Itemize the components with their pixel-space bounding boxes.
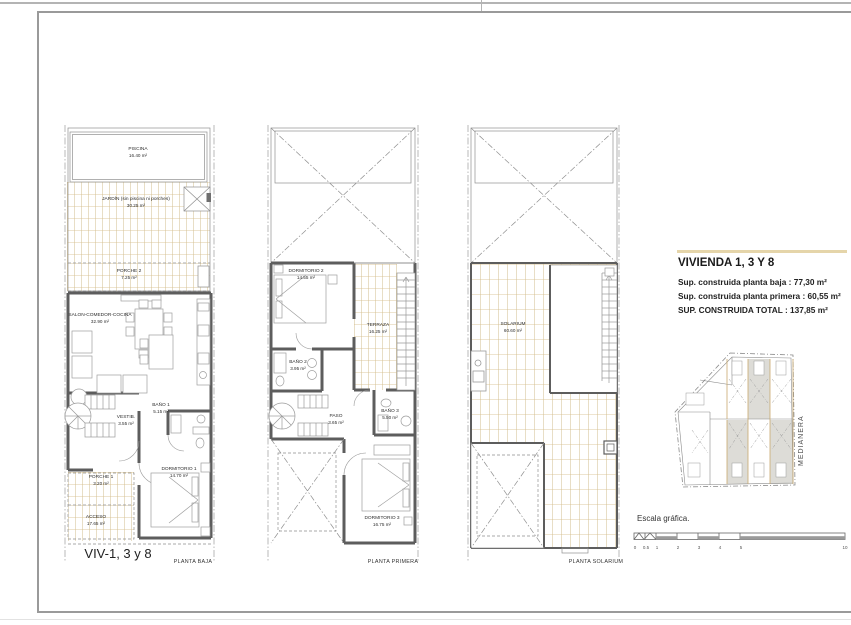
room-label-dorm1: DORMITORIO 1 14.70 m² [161, 467, 196, 480]
floorplan-planta-primera: DORMITORIO 2 14.55 m² TERRAZA 16.25 m² B… [266, 123, 421, 563]
room-name: ACCESO [86, 515, 106, 520]
room-name: DORMITORIO 3 [364, 516, 399, 521]
void-over-garden [471, 128, 617, 263]
floorplan-planta-baja: PISCINA 16.40 m² JARDÍN (sin piscina ni … [63, 123, 218, 563]
room-area: 60.60 m² [500, 328, 525, 334]
room-label-dorm3: DORMITORIO 3 16.75 m² [364, 516, 399, 529]
room-area: 16.75 m² [364, 522, 399, 528]
room-name: BAÑO 2 [289, 360, 307, 365]
drawing-sheet: PISCINA 16.40 m² JARDÍN (sin piscina ni … [0, 0, 851, 625]
room-area: 14.70 m² [161, 473, 196, 479]
stair-shaft [550, 265, 617, 393]
bath1-fixtures [171, 415, 209, 448]
scale-caption: Escala gráfica. [637, 514, 689, 523]
sheet-top-rule [0, 2, 851, 4]
unit-label: VIV-1, 3 y 8 [84, 546, 151, 561]
scale-tick-10: 10 [842, 545, 847, 550]
scale-bar [633, 532, 849, 546]
room-name: DORMITORIO 2 [288, 269, 323, 274]
room-area: 14.55 m² [288, 275, 323, 281]
room-name: VESTIB. [117, 415, 135, 420]
room-name: PORCHE 2 [117, 269, 142, 274]
room-name: DORMITORIO 1 [161, 467, 196, 472]
terraza-stairs [397, 273, 415, 390]
room-name: PASO [330, 414, 343, 419]
legend-line-total: SUP. CONSTRUIDA TOTAL : 137,85 m² [678, 305, 828, 315]
rooftop-unit [471, 351, 486, 391]
room-label-porche2: PORCHE 2 7.25 m² [117, 269, 142, 282]
room-label-salon: SALON-COMEDOR-COCINA 32.90 m² [68, 313, 131, 326]
void-over-garden [271, 128, 415, 263]
room-label-bano2: BAÑO 2 3.95 m² [289, 360, 307, 373]
garden-cabinet [198, 266, 209, 287]
medianera-label: MEDIANERA [798, 396, 810, 466]
room-area: 30.25 m² [102, 203, 170, 209]
room-name: BAÑO 1 [152, 403, 170, 408]
planter-box [184, 187, 211, 211]
legend-accent-rule [677, 250, 847, 253]
legend-line-planta-baja: Sup. construida planta baja : 77,30 m² [678, 277, 827, 287]
room-label-bano3: BAÑO 3 5.50 m² [381, 409, 399, 422]
room-label-bano1: BAÑO 1 5.15 m² [152, 403, 170, 416]
scale-tick-3: 3 [698, 545, 701, 550]
room-area: 16.25 m² [367, 329, 389, 335]
void-over-porche [471, 443, 544, 548]
planta-primera-drawing [266, 123, 421, 563]
room-area: 17.65 m² [86, 521, 106, 527]
legend-line-planta-primera: Sup. construida planta primera : 60,55 m… [678, 291, 841, 301]
plan-title-baja: PLANTA BAJA [174, 559, 213, 565]
room-area: 16.40 m² [128, 153, 147, 159]
floorplan-planta-solarium: SOLARIUM 60.60 m² PLANTA SOLARIUM [466, 123, 622, 563]
room-label-terraza: TERRAZA 16.25 m² [367, 323, 389, 336]
room-name: PISCINA [128, 147, 147, 152]
chimney [604, 441, 617, 454]
room-area: 3.95 m² [289, 366, 307, 372]
sheet-bottom-rule [0, 619, 851, 620]
dorm3-bed [362, 445, 412, 525]
room-label-dorm2: DORMITORIO 2 14.55 m² [288, 269, 323, 282]
room-area: 3.65 m² [328, 420, 344, 426]
room-area: 32.90 m² [68, 319, 131, 325]
room-label-porche1: PORCHE 1 3.20 m² [89, 475, 114, 488]
site-key-plan [670, 345, 805, 495]
room-label-piscina: PISCINA 16.40 m² [128, 147, 147, 160]
room-name: BAÑO 3 [381, 409, 399, 414]
room-area: 5.15 m² [152, 409, 170, 415]
room-name: SALON-COMEDOR-COCINA [68, 313, 131, 318]
room-label-paso: PASO 3.65 m² [328, 414, 344, 427]
plan-title-solarium: PLANTA SOLARIUM [569, 559, 623, 565]
scale-tick-2: 2 [677, 545, 680, 550]
site-key-drawing [670, 345, 805, 495]
scale-tick-1: 1 [656, 545, 659, 550]
living-furniture [71, 295, 173, 405]
room-name: PORCHE 1 [89, 475, 114, 480]
room-name: JARDÍN (sin piscina ni porches) [102, 197, 170, 202]
kitchen-counter [197, 299, 210, 385]
room-label-solarium: SOLARIUM 60.60 m² [500, 322, 525, 335]
scale-tick-5: 5 [740, 545, 743, 550]
room-label-vestib: VESTIB. 3.55 m² [117, 415, 135, 428]
room-label-acceso: ACCESO 17.65 m² [86, 515, 106, 528]
room-name: SOLARIUM [500, 322, 525, 327]
room-area: 3.55 m² [117, 421, 135, 427]
planta-solarium-drawing [466, 123, 622, 563]
scale-tick-05: 0.5 [643, 545, 649, 550]
scale-tick-4: 4 [719, 545, 722, 550]
room-area: 7.25 m² [117, 275, 142, 281]
room-label-jardin: JARDÍN (sin piscina ni porches) 30.25 m² [102, 197, 170, 210]
void-over-porche [271, 439, 344, 543]
room-area: 3.20 m² [89, 481, 114, 487]
legend-title: VIVIENDA 1, 3 Y 8 [678, 257, 774, 269]
planta-baja-drawing [63, 123, 218, 563]
spiral-stair [269, 395, 328, 436]
room-area: 5.50 m² [381, 415, 399, 421]
room-name: TERRAZA [367, 323, 389, 328]
plan-title-primera: PLANTA PRIMERA [368, 559, 419, 565]
scale-tick-0: 0 [634, 545, 637, 550]
